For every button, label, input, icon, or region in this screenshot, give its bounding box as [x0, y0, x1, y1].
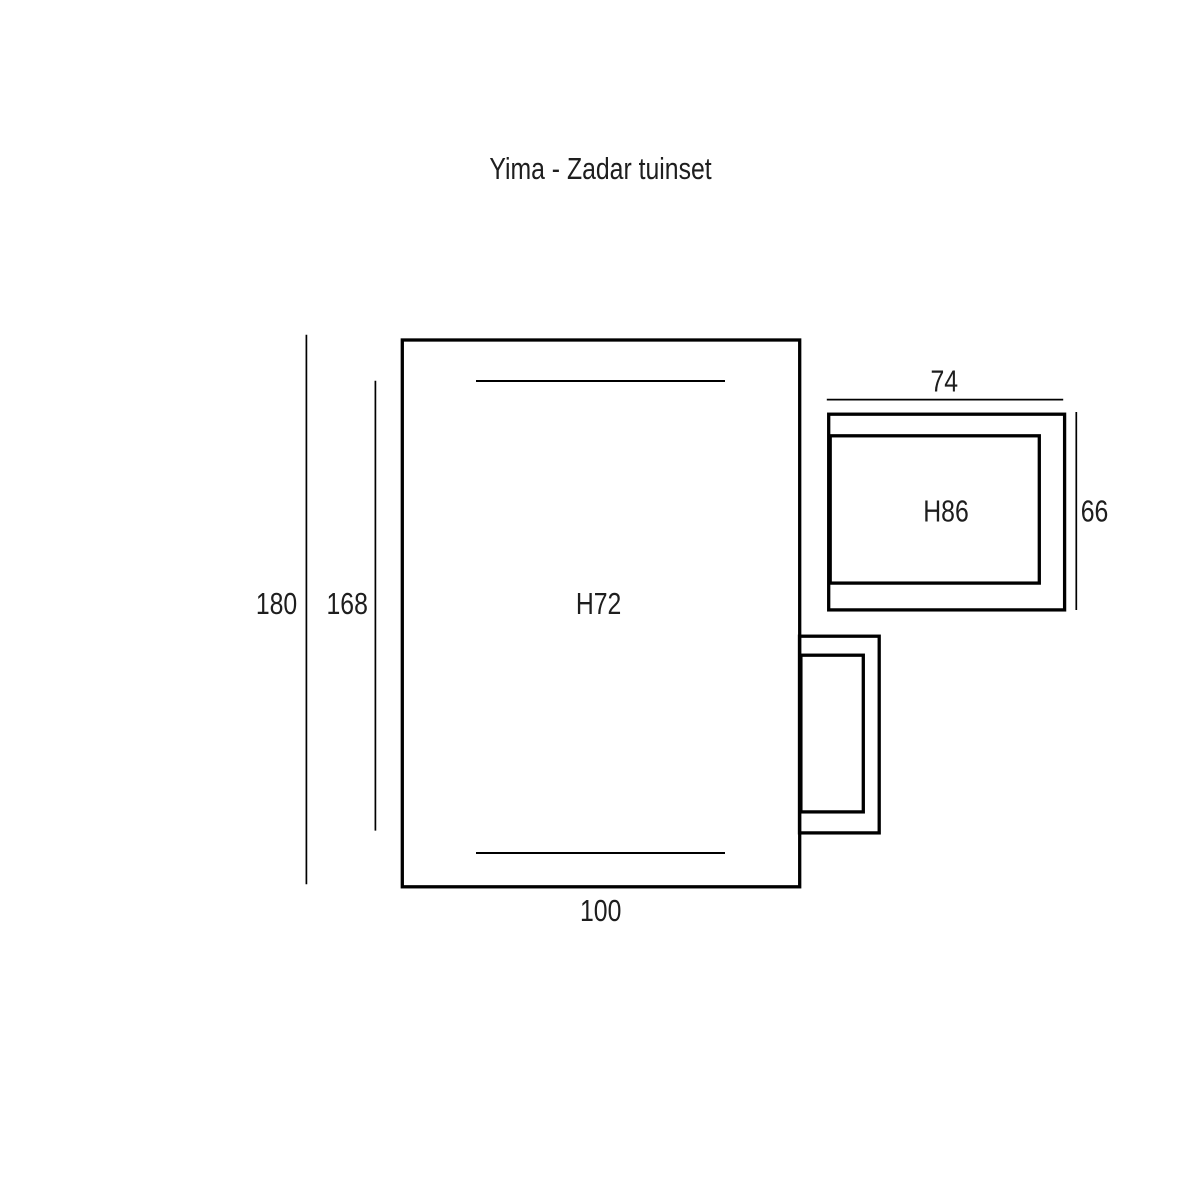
svg-text:H86: H86: [923, 494, 968, 528]
svg-text:H72: H72: [576, 586, 621, 620]
svg-text:Yima - Zadar tuinset: Yima - Zadar tuinset: [489, 151, 711, 185]
svg-text:66: 66: [1081, 494, 1109, 528]
svg-text:100: 100: [580, 893, 621, 927]
svg-text:74: 74: [931, 364, 959, 398]
svg-text:180: 180: [256, 586, 297, 620]
svg-text:168: 168: [327, 586, 368, 620]
